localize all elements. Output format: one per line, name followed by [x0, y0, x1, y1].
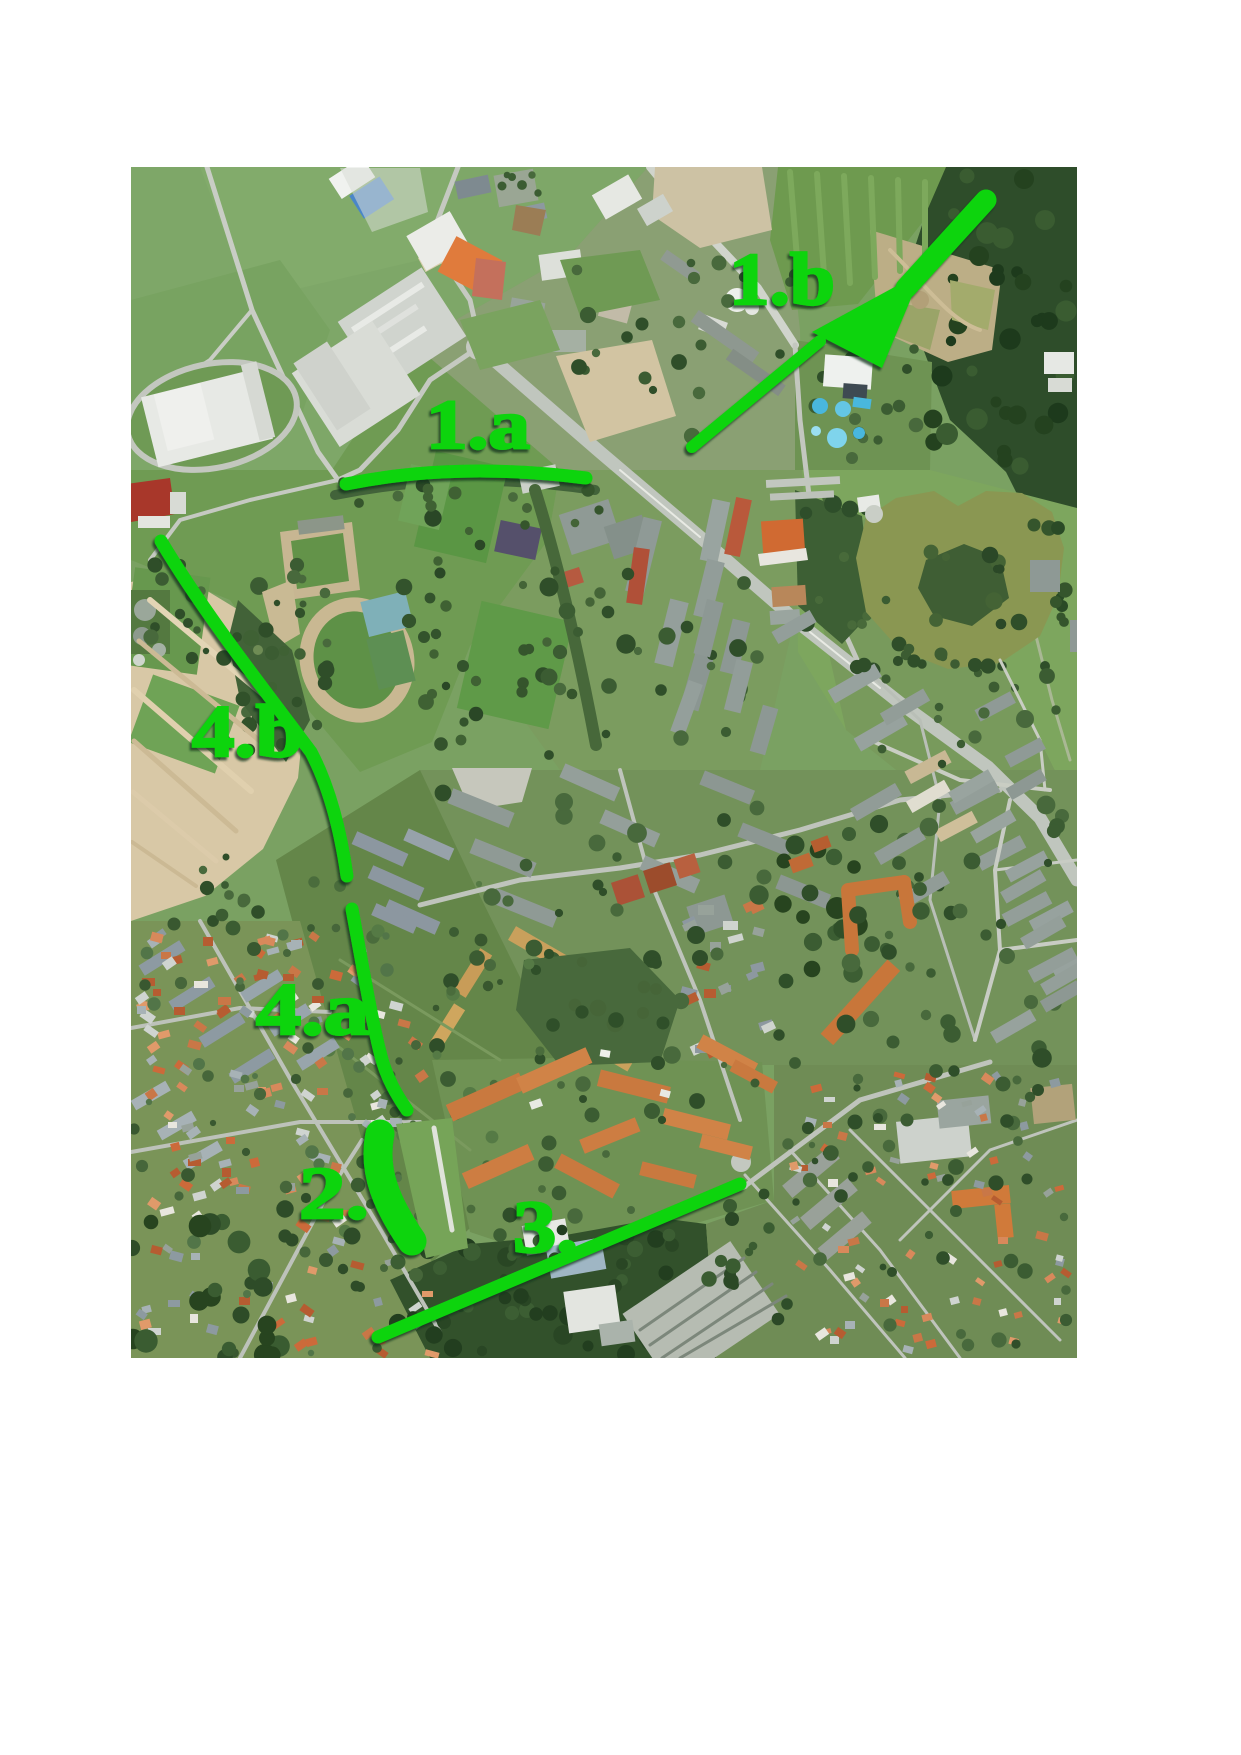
svg-text:1.b: 1.b: [729, 239, 835, 321]
svg-text:2.: 2.: [299, 1153, 369, 1235]
svg-text:1.a: 1.a: [426, 387, 530, 464]
svg-text:3.: 3.: [513, 1187, 578, 1269]
svg-text:4.b: 4.b: [192, 691, 303, 773]
svg-text:4.a: 4.a: [256, 969, 369, 1051]
